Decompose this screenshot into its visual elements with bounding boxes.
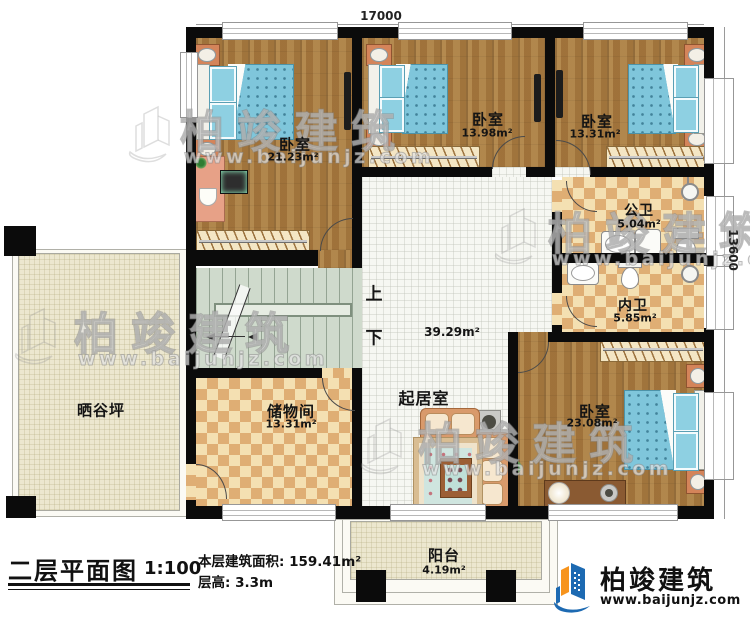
yard-column bbox=[6, 496, 36, 518]
room-label-balcony: 阳台 bbox=[428, 545, 460, 566]
door-threshold bbox=[186, 464, 196, 500]
balcony-column bbox=[486, 570, 516, 602]
door-threshold bbox=[552, 293, 562, 325]
room-area-inner-bath: 5.85m² bbox=[613, 312, 656, 325]
floor-area-value: 159.41m² bbox=[289, 554, 361, 570]
floor-area-label: 本层建筑面积: bbox=[198, 554, 284, 570]
wall bbox=[186, 250, 318, 266]
nightstand bbox=[366, 44, 392, 66]
floor-height-value: 3.3m bbox=[235, 575, 273, 591]
speaker bbox=[600, 484, 618, 502]
drawing-scale: 1:100 bbox=[144, 558, 201, 579]
wall bbox=[510, 27, 583, 38]
computer-monitor bbox=[220, 170, 248, 194]
pillow bbox=[674, 394, 698, 432]
wall bbox=[526, 167, 555, 177]
title-underline bbox=[8, 583, 190, 590]
wall bbox=[336, 27, 398, 38]
tv-icon bbox=[534, 74, 541, 122]
floor-height-row: 层高: 3.3m bbox=[198, 571, 273, 591]
window bbox=[706, 266, 734, 330]
window bbox=[222, 22, 338, 40]
door-threshold bbox=[518, 332, 548, 342]
wall bbox=[186, 500, 196, 519]
watermark-logo-icon bbox=[10, 300, 64, 368]
wall bbox=[186, 27, 196, 52]
window bbox=[583, 22, 688, 40]
room-label-drying-yard: 晒谷坪 bbox=[77, 400, 125, 421]
room-area-living: 39.29m² bbox=[424, 325, 480, 339]
stairs-up-label: 上 bbox=[366, 280, 383, 305]
room-area-bedroom-tr: 13.31m² bbox=[569, 128, 620, 141]
drying-yard-floor bbox=[18, 253, 180, 511]
window bbox=[398, 22, 512, 40]
lamp bbox=[548, 482, 570, 504]
tv-icon bbox=[556, 70, 563, 118]
wardrobe bbox=[196, 230, 310, 252]
watermark-url: www.baijunjz.com bbox=[422, 458, 672, 480]
watermark-url: www.baijunjz.com bbox=[78, 348, 328, 370]
wall bbox=[590, 167, 714, 177]
dimension-width: 17000 bbox=[360, 9, 402, 23]
window bbox=[704, 78, 734, 164]
wall bbox=[334, 506, 390, 519]
room-area-bedroom-br: 23.08m² bbox=[566, 417, 617, 430]
room-area-bedroom-tl: 21.23m² bbox=[267, 151, 318, 164]
pillow bbox=[674, 432, 698, 470]
toilet-icon bbox=[621, 267, 639, 289]
brand-website: www.baijunjz.com bbox=[600, 593, 741, 608]
room-area-storage: 13.31m² bbox=[265, 418, 316, 431]
wall bbox=[548, 332, 714, 342]
room-area-balcony: 4.19m² bbox=[422, 564, 465, 577]
pillow bbox=[380, 66, 404, 100]
floor-area-row: 本层建筑面积: 159.41m² bbox=[198, 550, 361, 570]
watermark-logo-icon bbox=[124, 98, 178, 166]
yard-column bbox=[4, 226, 36, 256]
floor-plan: 柏竣建筑 www.baijunjz.com 柏竣建筑 www.baijunjz.… bbox=[0, 0, 750, 625]
watermark-logo-icon bbox=[490, 200, 544, 268]
page-title: 二层平面图 bbox=[8, 551, 138, 586]
desk-lamp bbox=[199, 188, 217, 206]
wall bbox=[186, 116, 196, 464]
brand-name: 柏竣建筑 bbox=[600, 560, 716, 597]
pillow bbox=[674, 66, 698, 100]
watermark-logo-icon bbox=[356, 410, 410, 478]
dimension-height: 13600 bbox=[726, 229, 740, 271]
floor-height-label: 层高: bbox=[198, 575, 230, 591]
window bbox=[222, 504, 336, 521]
sofa-cushion bbox=[481, 483, 503, 505]
room-area-public-bath: 5.04m² bbox=[617, 218, 660, 231]
showerhead-stem bbox=[687, 176, 689, 184]
wall bbox=[545, 38, 555, 167]
window bbox=[548, 504, 678, 521]
door-threshold bbox=[318, 250, 352, 268]
wall bbox=[704, 27, 714, 78]
wall bbox=[362, 167, 492, 177]
wall bbox=[704, 478, 714, 519]
pillow bbox=[674, 98, 698, 132]
watermark-url: www.baijunjz.com bbox=[552, 248, 750, 270]
brand-logo-icon bbox=[552, 556, 598, 616]
window bbox=[704, 392, 734, 480]
room-area-bedroom-tc: 13.98m² bbox=[461, 127, 512, 140]
balcony-door bbox=[390, 504, 486, 521]
room-label-living: 起居室 bbox=[398, 385, 449, 409]
wall bbox=[484, 506, 548, 519]
balcony-column bbox=[356, 570, 386, 602]
stairs-down-label: 下 bbox=[366, 324, 383, 349]
wardrobe bbox=[606, 146, 706, 168]
